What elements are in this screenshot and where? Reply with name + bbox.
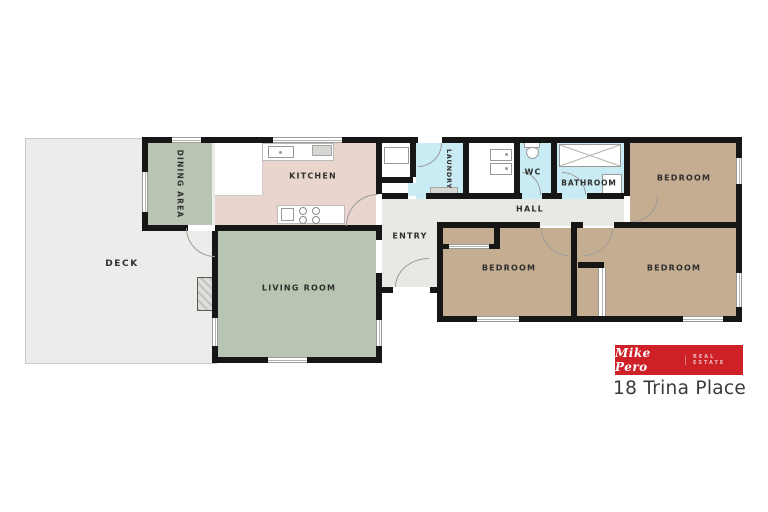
oven: [281, 208, 294, 221]
bathtub: [559, 144, 621, 167]
wall: [376, 273, 382, 320]
wall: [442, 137, 742, 143]
wall: [519, 316, 683, 322]
agency-logo: Mike Pero | REAL ESTATE: [615, 345, 743, 375]
room-label-bedroom2: BEDROOM: [482, 264, 536, 273]
wall: [624, 143, 630, 196]
kitchen-corner-nook: [215, 143, 263, 196]
window: [376, 320, 382, 346]
wall: [551, 143, 557, 199]
room-label-entry: ENTRY: [392, 232, 427, 241]
wall: [376, 231, 382, 240]
living-room-floor: [215, 231, 376, 357]
wall: [736, 137, 742, 158]
wall: [426, 193, 522, 199]
room-label-living: LIVING ROOM: [262, 284, 336, 293]
stove-burner: [312, 207, 320, 215]
wall: [736, 307, 742, 322]
agency-logo-suffix: REAL ESTATE: [693, 354, 743, 366]
wall: [514, 143, 520, 199]
front-door-threshold: [393, 287, 430, 293]
wall: [437, 228, 443, 316]
wall: [376, 346, 382, 363]
closet-slider-door: [449, 244, 489, 249]
window: [172, 137, 201, 143]
wall: [571, 228, 577, 316]
stove-burner: [299, 216, 307, 224]
wall: [437, 316, 477, 322]
wall: [736, 184, 742, 273]
wall: [212, 357, 268, 363]
room-label-kitchen: KITCHEN: [289, 172, 337, 181]
pantry-cupboard: [384, 147, 409, 164]
wall: [410, 143, 416, 177]
laundry-nook-floor: [408, 183, 426, 196]
window: [683, 316, 723, 322]
wall: [494, 228, 500, 249]
bedroom1-door-threshold: [624, 196, 630, 222]
property-address: 18 Trina Place: [613, 378, 745, 399]
window: [273, 137, 342, 143]
stove-burner: [299, 207, 307, 215]
closet-slider-door: [598, 268, 606, 316]
wall: [542, 193, 562, 199]
room-label-bathroom: BATHROOM: [561, 179, 617, 188]
room-label-bedroom3: BEDROOM: [647, 264, 701, 273]
agency-logo-divider: |: [684, 355, 687, 366]
room-label-wc: WC: [524, 168, 541, 177]
room-label-deck: DECK: [105, 259, 139, 269]
window: [142, 172, 148, 212]
kitchen-appliance: [312, 145, 332, 156]
agency-logo-script: Mike Pero: [615, 346, 678, 374]
wall: [430, 287, 443, 293]
wall: [463, 143, 469, 199]
wall: [379, 177, 413, 183]
window: [268, 357, 307, 363]
wall: [614, 222, 742, 228]
dryer-knob: [505, 167, 508, 170]
floor-plan: DECK DINING AREA KITCHEN LIVING ROOM ENT…: [0, 0, 768, 512]
room-label-laundry: LAUNDRY: [445, 149, 453, 189]
window: [477, 316, 519, 322]
wall: [307, 357, 382, 363]
sink-tap-dot: [279, 151, 282, 154]
washing-machine-knob: [505, 153, 508, 156]
washing-machine: [490, 149, 512, 161]
living-entry-opening: [376, 240, 382, 273]
wall: [376, 143, 382, 194]
room-label-hall: HALL: [516, 205, 544, 214]
window: [736, 273, 742, 307]
wall: [142, 225, 188, 231]
window: [212, 318, 218, 346]
room-label-bedroom1: BEDROOM: [657, 174, 711, 183]
stove-burner: [312, 216, 320, 224]
window: [736, 158, 742, 184]
wall: [142, 143, 148, 172]
dryer: [490, 163, 512, 175]
wall: [437, 222, 540, 228]
room-label-dining: DINING AREA: [176, 150, 185, 219]
wall: [201, 137, 273, 143]
wall: [379, 287, 393, 293]
